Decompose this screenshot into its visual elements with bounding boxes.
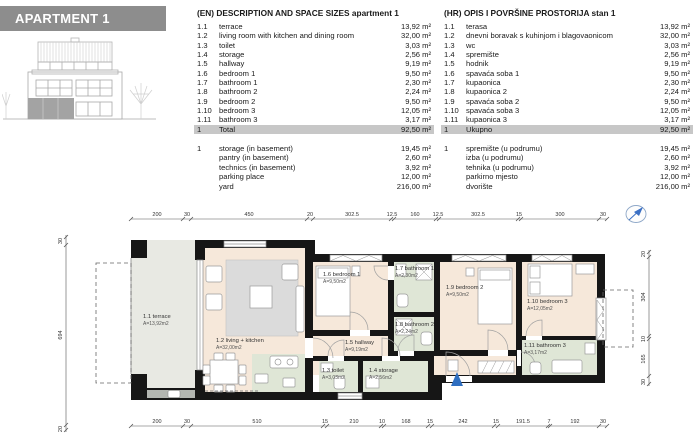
dim-label: 15 — [427, 419, 433, 425]
row-code: 1.8 — [444, 87, 466, 96]
row-area: 19,45 m² — [644, 144, 690, 153]
row-code: 1.3 — [197, 41, 219, 50]
dim-label: 300 — [555, 212, 564, 218]
row-code: 1.11 — [197, 115, 219, 124]
row-area: 2,56 m² — [385, 50, 431, 59]
table-hr: (HR) OPIS I POVRŠINE PROSTORIJA stan 1 1… — [441, 8, 693, 191]
table-row: 1 storage (in basement) 19,45 m² — [194, 144, 434, 153]
row-code: 1.6 — [444, 69, 466, 78]
row-code: 1.11 — [444, 115, 466, 124]
compass-icon — [626, 206, 646, 223]
row-label: spavaća soba 3 — [466, 106, 644, 115]
table-row: dvorište 216,00 m² — [441, 182, 693, 191]
row-area: 32,00 m² — [644, 31, 690, 40]
table-en-title: (EN) DESCRIPTION AND SPACE SIZES apartme… — [197, 8, 434, 18]
table-row: parking place 12,00 m² — [194, 172, 434, 181]
row-label: kupaonica — [466, 78, 644, 87]
table-en-rows: 1.1 terrace 13,92 m² 1.2 living room wit… — [194, 22, 434, 125]
row-code — [444, 172, 466, 181]
row-code: 1.5 — [197, 59, 219, 68]
label-bedroom1: 1.6 bedroom 1 — [323, 272, 360, 278]
table-row: tehnika (u podrumu) 3,92 m² — [441, 163, 693, 172]
row-code: 1 — [444, 144, 466, 153]
area-bathroom1: A=2,30m2 — [395, 273, 418, 279]
area-bedroom1: A=9,50m2 — [323, 279, 346, 285]
dim-label: 510 — [252, 419, 261, 425]
row-area: 2,60 m² — [385, 153, 431, 162]
armchair — [206, 294, 222, 310]
table-row: 1.6 spavaća soba 1 9,50 m² — [441, 69, 693, 78]
label-toilet: 1.3 toilet — [322, 368, 344, 374]
dim-label: 30 — [58, 238, 64, 244]
dim-label: 242 — [458, 419, 467, 425]
row-area: 12,00 m² — [644, 172, 690, 181]
row-code: 1.9 — [444, 97, 466, 106]
row-code: 1.4 — [197, 50, 219, 59]
sofa — [296, 286, 304, 332]
dim-label: 12.5 — [433, 212, 444, 218]
row-code: 1.10 — [444, 106, 466, 115]
row-label: storage (in basement) — [219, 144, 385, 153]
row-code: 1 — [197, 144, 219, 153]
row-code — [197, 163, 219, 172]
dim-label: 12.5 — [387, 212, 398, 218]
row-code: 1.4 — [444, 50, 466, 59]
row-area: 9,50 m² — [644, 69, 690, 78]
label-bathroom1: 1.7 bathroom 1 — [395, 266, 434, 272]
row-label: spremište (u podrumu) — [466, 144, 644, 153]
table-row: 1.2 dnevni boravak s kuhinjom i blagovao… — [441, 31, 693, 40]
row-code: 1.7 — [197, 78, 219, 87]
row-label: bedroom 2 — [219, 97, 385, 106]
dim-label: 450 — [244, 212, 253, 218]
dim-label: 30 — [600, 419, 606, 425]
row-area: 3,92 m² — [385, 163, 431, 172]
row-label: terrace — [219, 22, 385, 31]
table-row: 1.7 kupaonica 2,30 m² — [441, 78, 693, 87]
dim-label: 30 — [184, 212, 190, 218]
row-label: spremište — [466, 50, 644, 59]
row-code — [197, 172, 219, 181]
table-row: 1.2 living room with kitchen and dining … — [194, 31, 434, 40]
armchair — [282, 264, 298, 280]
row-label: Ukupno — [466, 125, 644, 134]
row-code — [197, 182, 219, 191]
table-row: yard 216,00 m² — [194, 182, 434, 191]
dim-label: 10 — [379, 419, 385, 425]
table-row: 1.9 spavaća soba 2 9,50 m² — [441, 97, 693, 106]
table-row: 1 spremište (u podrumu) 19,45 m² — [441, 144, 693, 153]
row-label: kupaonica 3 — [466, 115, 644, 124]
area-hallway: A=9,19m2 — [345, 347, 368, 353]
table-row: 1.1 terasa 13,92 m² — [441, 22, 693, 31]
table-row: 1.6 bedroom 1 9,50 m² — [194, 69, 434, 78]
row-code: 1.5 — [444, 59, 466, 68]
row-area: 2,60 m² — [644, 153, 690, 162]
row-label: bathroom 2 — [219, 87, 385, 96]
dim-label: 15 — [322, 419, 328, 425]
row-area: 19,45 m² — [385, 144, 431, 153]
dim-label: 165 — [641, 354, 647, 363]
apartment-title: APARTMENT 1 — [15, 11, 110, 26]
table-row: 1.5 hodnik 9,19 m² — [441, 59, 693, 68]
row-label: storage — [219, 50, 385, 59]
row-area: 9,50 m² — [644, 97, 690, 106]
table-row: 1.11 kupaonica 3 3,17 m² — [441, 115, 693, 124]
row-area: 13,92 m² — [385, 22, 431, 31]
row-code: 1.2 — [444, 31, 466, 40]
row-label: pantry (in basement) — [219, 153, 385, 162]
label-bathroom2: 1.8 bathroom 2 — [395, 322, 434, 328]
row-label: bedroom 1 — [219, 69, 385, 78]
row-label: bathroom 3 — [219, 115, 385, 124]
dim-label: 20 — [641, 251, 647, 257]
row-label: spavaća soba 1 — [466, 69, 644, 78]
dim-label: 302.5 — [471, 212, 485, 218]
label-living: 1.2 living + kitchen — [216, 338, 264, 344]
row-code — [197, 153, 219, 162]
dim-label: 15 — [493, 419, 499, 425]
label-bathroom3: 1.11 bathroom 3 — [524, 343, 566, 349]
table-row: 1.3 toilet 3,03 m² — [194, 41, 434, 50]
label-hallway: 1.5 hallway — [345, 340, 374, 346]
dim-label: 10 — [641, 336, 647, 342]
row-code: 1 — [197, 125, 219, 134]
slat-screen — [41, 42, 110, 62]
label-storage: 1.4 storage — [369, 368, 398, 374]
table-row: 1.9 bedroom 2 9,50 m² — [194, 97, 434, 106]
row-area: 9,50 m² — [385, 69, 431, 78]
row-code: 1.8 — [197, 87, 219, 96]
dim-label: 192 — [570, 419, 579, 425]
building-elevation — [2, 32, 158, 126]
row-code: 1.9 — [197, 97, 219, 106]
area-toilet: A=3,03m2 — [322, 375, 345, 381]
dim-label: 15 — [516, 212, 522, 218]
row-code: 1.1 — [444, 22, 466, 31]
row-area: 3,92 m² — [644, 163, 690, 172]
row-code — [444, 163, 466, 172]
row-label: terasa — [466, 22, 644, 31]
row-label: Total — [219, 125, 385, 134]
table-hr-extras: 1 spremište (u podrumu) 19,45 m² izba (u… — [441, 144, 693, 191]
yard-outline — [96, 263, 131, 383]
row-label: technics (in basement) — [219, 163, 385, 172]
dim-label: 200 — [152, 419, 161, 425]
row-area: 12,05 m² — [644, 106, 690, 115]
table-row: 1.8 kupaonica 2 2,24 m² — [441, 87, 693, 96]
row-label: dvorište — [466, 182, 644, 191]
page-title: APARTMENT 1 — [0, 6, 166, 31]
table-row: parkirno mjesto 12,00 m² — [441, 172, 693, 181]
row-label: wc — [466, 41, 644, 50]
hallway-wardrobe — [448, 360, 514, 373]
table-row: technics (in basement) 3,92 m² — [194, 163, 434, 172]
area-bedroom3: A=12,05m2 — [527, 306, 553, 312]
dim-label: 20 — [58, 426, 64, 432]
row-label: tehnika (u podrumu) — [466, 163, 644, 172]
dim-label: 694 — [58, 330, 64, 339]
row-area: 92,50 m² — [644, 125, 690, 134]
table-row: 1.7 bathroom 1 2,30 m² — [194, 78, 434, 87]
row-label: toilet — [219, 41, 385, 50]
row-label: hodnik — [466, 59, 644, 68]
row-code: 1 — [444, 125, 466, 134]
dim-label: 7 — [547, 419, 550, 425]
row-code: 1.1 — [197, 22, 219, 31]
label-bedroom2: 1.9 bedroom 2 — [446, 285, 483, 291]
table-row: 1.11 bathroom 3 3,17 m² — [194, 115, 434, 124]
row-area: 12,00 m² — [385, 172, 431, 181]
row-code: 1.3 — [444, 41, 466, 50]
area-bathroom3: A=3,17m2 — [524, 350, 547, 356]
label-terrace: 1.1 terrace — [143, 314, 171, 320]
row-area: 32,00 m² — [385, 31, 431, 40]
row-code: 1.7 — [444, 78, 466, 87]
row-label: parkirno mjesto — [466, 172, 644, 181]
table-row: pantry (in basement) 2,60 m² — [194, 153, 434, 162]
row-area: 3,03 m² — [644, 41, 690, 50]
row-label: parking place — [219, 172, 385, 181]
row-code — [444, 153, 466, 162]
row-area: 3,17 m² — [385, 115, 431, 124]
row-label: kupaonica 2 — [466, 87, 644, 96]
table-row: 1.10 spavaća soba 3 12,05 m² — [441, 106, 693, 115]
table-total-row: 1 Total 92,50 m² — [194, 125, 434, 134]
area-terrace: A=13,92m2 — [143, 321, 169, 327]
table-row: izba (u podrumu) 2,60 m² — [441, 153, 693, 162]
row-area: 9,19 m² — [385, 59, 431, 68]
area-storage: A=2,56m2 — [369, 375, 392, 381]
row-label: yard — [219, 182, 385, 191]
dim-label: 30 — [641, 379, 647, 385]
dim-label: 191.5 — [516, 419, 530, 425]
floor-plan: 200 30 450 20 302.5 12.5 160 12.5 302.5 … — [0, 204, 700, 444]
row-label: living room with kitchen and dining room — [219, 31, 385, 40]
row-label: dnevni boravak s kuhinjom i blagovaonico… — [466, 31, 644, 40]
table-row: 1.10 bedroom 3 12,05 m² — [194, 106, 434, 115]
table-total-row: 1 Ukupno 92,50 m² — [441, 125, 693, 134]
row-area: 2,24 m² — [644, 87, 690, 96]
row-label: bedroom 3 — [219, 106, 385, 115]
table-hr-title: (HR) OPIS I POVRŠINE PROSTORIJA stan 1 — [444, 8, 693, 18]
row-code: 1.10 — [197, 106, 219, 115]
row-code: 1.6 — [197, 69, 219, 78]
table-row: 1.1 terrace 13,92 m² — [194, 22, 434, 31]
row-code — [444, 182, 466, 191]
row-area: 9,19 m² — [644, 59, 690, 68]
row-label: hallway — [219, 59, 385, 68]
row-area: 2,56 m² — [644, 50, 690, 59]
row-area: 2,30 m² — [385, 78, 431, 87]
row-area: 13,92 m² — [644, 22, 690, 31]
table-en-extras: 1 storage (in basement) 19,45 m² pantry … — [194, 144, 434, 191]
dim-label: 160 — [410, 212, 419, 218]
table-en: (EN) DESCRIPTION AND SPACE SIZES apartme… — [194, 8, 434, 191]
dim-label: 30 — [184, 419, 190, 425]
dim-label: 20 — [307, 212, 313, 218]
row-area: 2,24 m² — [385, 87, 431, 96]
dim-label: 210 — [349, 419, 358, 425]
dim-label: 168 — [401, 419, 410, 425]
table-row: 1.4 spremište 2,56 m² — [441, 50, 693, 59]
side-terrace-outline — [603, 290, 633, 347]
area-living: A=32,00m2 — [216, 345, 242, 351]
coffee-table — [250, 286, 272, 308]
row-area: 2,30 m² — [644, 78, 690, 87]
row-label: izba (u podrumu) — [466, 153, 644, 162]
row-area: 9,50 m² — [385, 97, 431, 106]
dim-label: 30 — [600, 212, 606, 218]
row-area: 3,17 m² — [644, 115, 690, 124]
row-area: 92,50 m² — [385, 125, 431, 134]
table-row: 1.5 hallway 9,19 m² — [194, 59, 434, 68]
row-area: 12,05 m² — [385, 106, 431, 115]
row-area: 3,03 m² — [385, 41, 431, 50]
dim-label: 304 — [641, 292, 647, 301]
row-area: 216,00 m² — [385, 182, 431, 191]
area-bedroom2: A=9,50m2 — [446, 292, 469, 298]
table-row: 1.4 storage 2,56 m² — [194, 50, 434, 59]
table-row: 1.3 wc 3,03 m² — [441, 41, 693, 50]
apartment-highlight — [28, 98, 74, 119]
area-bathroom2: A=2,24m2 — [395, 329, 418, 335]
armchair — [206, 266, 222, 282]
row-area: 216,00 m² — [644, 182, 690, 191]
table-hr-rows: 1.1 terasa 13,92 m² 1.2 dnevni boravak s… — [441, 22, 693, 125]
table-row: 1.8 bathroom 2 2,24 m² — [194, 87, 434, 96]
dim-label: 302.5 — [345, 212, 359, 218]
row-code: 1.2 — [197, 31, 219, 40]
row-label: spavaća soba 2 — [466, 97, 644, 106]
dim-label: 200 — [152, 212, 161, 218]
row-label: bathroom 1 — [219, 78, 385, 87]
label-bedroom3: 1.10 bedroom 3 — [527, 299, 568, 305]
